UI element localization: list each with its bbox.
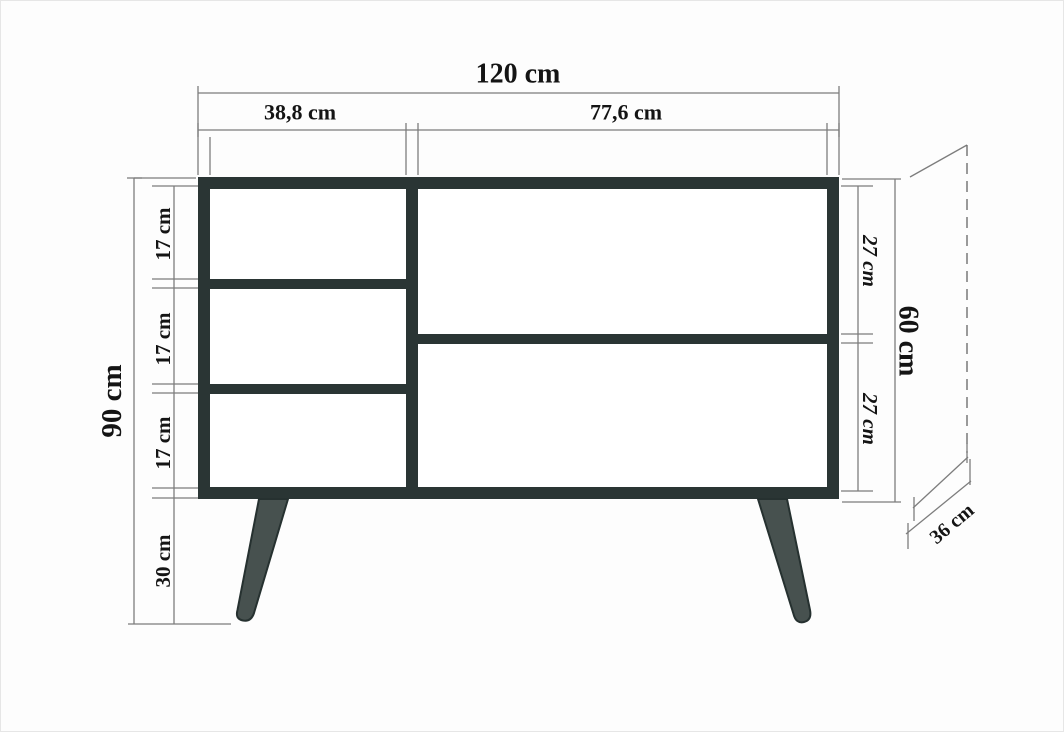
compartment-right-top bbox=[418, 189, 827, 334]
label-leg-height: 30 cm bbox=[151, 534, 175, 588]
label-right-column-width: 77,6 cm bbox=[590, 100, 662, 125]
compartment-left-1 bbox=[210, 189, 406, 279]
label-left-column-width: 38,8 cm bbox=[264, 100, 336, 125]
compartment-left-3 bbox=[210, 394, 406, 487]
label-total-height: 90 cm bbox=[96, 364, 128, 437]
cabinet bbox=[198, 177, 839, 622]
furniture-drawing: 120 cm 38,8 cm 77,6 cm 17 cm 17 cm 17 cm bbox=[1, 1, 1064, 732]
dim-sub-widths: 38,8 cm 77,6 cm bbox=[198, 100, 839, 176]
leg-right bbox=[758, 499, 810, 622]
label-depth: 36 cm bbox=[926, 499, 979, 549]
label-carcass-height: 60 cm bbox=[893, 306, 924, 377]
dim-right-heights: 27 cm 27 cm 60 cm bbox=[841, 179, 924, 502]
compartment-left-2 bbox=[210, 289, 406, 384]
label-total-width: 120 cm bbox=[476, 59, 561, 90]
label-right-compartment-bottom: 27 cm bbox=[858, 392, 882, 445]
depth-projection-bottom bbox=[913, 457, 968, 508]
label-right-compartment-top: 27 cm bbox=[858, 234, 882, 287]
label-left-compartment-2: 17 cm bbox=[151, 312, 175, 366]
depth-projection-top bbox=[910, 145, 967, 177]
label-left-compartment-1: 17 cm bbox=[151, 207, 175, 261]
leg-left bbox=[237, 499, 288, 621]
label-left-compartment-3: 17 cm bbox=[151, 416, 175, 470]
dimension-diagram: 120 cm 38,8 cm 77,6 cm 17 cm 17 cm 17 cm bbox=[0, 0, 1064, 732]
compartment-right-bottom bbox=[418, 344, 827, 487]
